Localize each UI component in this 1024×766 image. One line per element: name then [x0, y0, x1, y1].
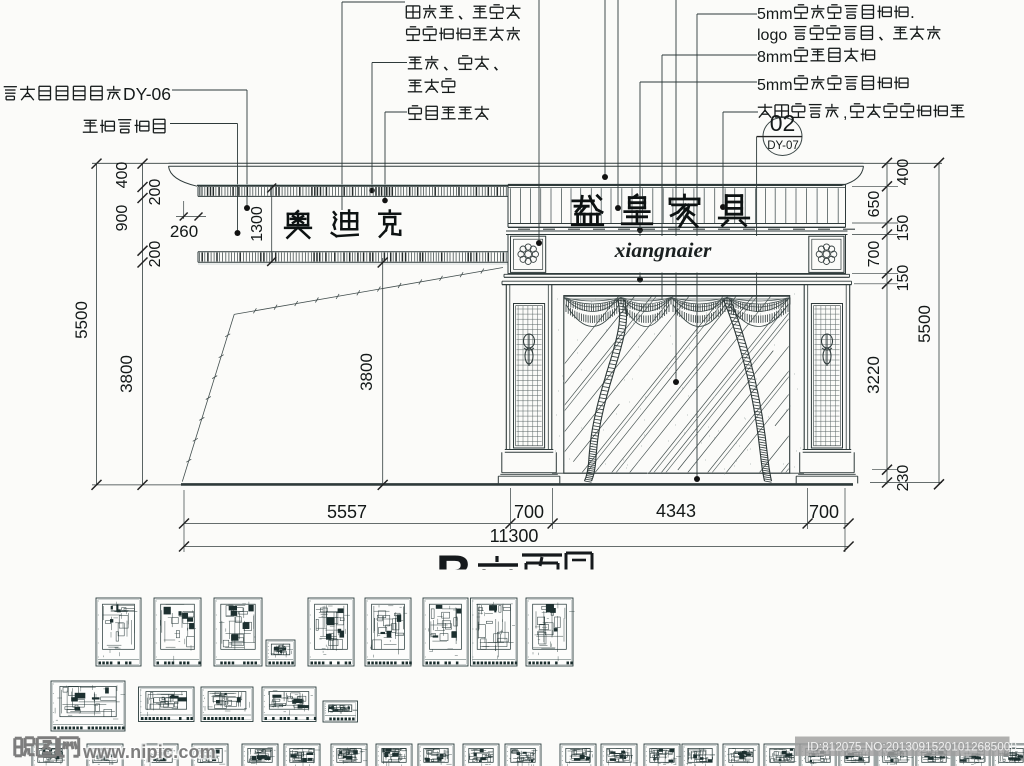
svg-text:900: 900 [114, 205, 131, 232]
svg-text:400: 400 [895, 159, 912, 186]
svg-text:260: 260 [170, 222, 198, 241]
svg-text:200: 200 [147, 241, 164, 268]
svg-text:8mm: 8mm [757, 49, 793, 66]
svg-text:200: 200 [147, 179, 164, 206]
svg-text:ID:812075 NO:20130915201012685: ID:812075 NO:20130915201012685000 [807, 740, 1017, 754]
svg-text:650: 650 [866, 191, 883, 218]
svg-text:700: 700 [514, 502, 544, 522]
svg-text:5mm: 5mm [757, 77, 793, 94]
svg-text:150: 150 [895, 265, 912, 292]
svg-text:230: 230 [895, 465, 912, 492]
svg-text:150: 150 [895, 215, 912, 242]
svg-text:700: 700 [809, 502, 839, 522]
svg-text:400: 400 [114, 162, 131, 189]
svg-text:5500: 5500 [915, 305, 934, 343]
svg-text:3220: 3220 [864, 356, 883, 394]
svg-text:.: . [910, 2, 915, 22]
svg-text:DY-06: DY-06 [123, 84, 171, 104]
svg-text:DY-07: DY-07 [767, 140, 799, 152]
svg-text:11300: 11300 [490, 526, 539, 546]
svg-text:3800: 3800 [117, 355, 136, 393]
svg-text:logo: logo [757, 27, 787, 44]
svg-text:www.nipic.com: www.nipic.com [82, 742, 216, 762]
svg-text:3800: 3800 [357, 353, 376, 391]
svg-text:5mm: 5mm [757, 6, 793, 23]
svg-text:1300: 1300 [249, 206, 266, 242]
svg-text:,: , [843, 105, 847, 122]
svg-text:02: 02 [770, 110, 796, 136]
svg-text:5500: 5500 [72, 301, 91, 339]
svg-text:5557: 5557 [327, 502, 367, 522]
svg-text:xiangnaier: xiangnaier [614, 238, 712, 262]
svg-text:700: 700 [866, 241, 883, 268]
svg-text:4343: 4343 [656, 501, 696, 521]
